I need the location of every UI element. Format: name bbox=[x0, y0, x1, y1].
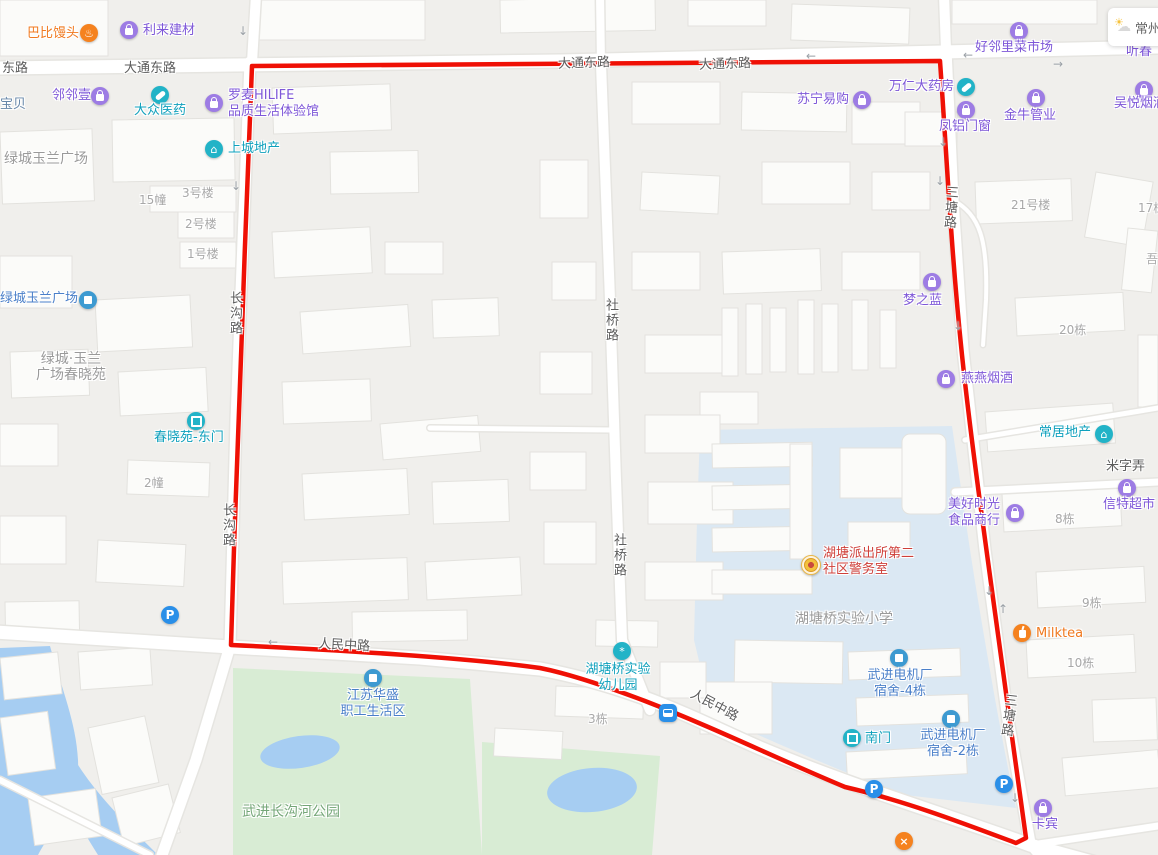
area-label-park: 武进长沟河公园 bbox=[242, 804, 340, 820]
poi-label-mengzhilan[interactable]: 梦之蓝 bbox=[903, 293, 942, 309]
road-label-renmin-1: 人民中路 bbox=[318, 637, 371, 656]
building-label: 17栋 bbox=[1138, 200, 1158, 216]
building-label: 2幢 bbox=[144, 475, 164, 491]
road-label-changgou-2: 长沟路 bbox=[220, 503, 234, 548]
poi-label-lvcheng-west[interactable]: 绿城玉兰广场 bbox=[0, 291, 78, 307]
road-label-datong-2: 大通东路 bbox=[558, 55, 611, 73]
weather-widget[interactable]: ☀ ☁ 常州 bbox=[1108, 8, 1158, 46]
shop-bag-icon[interactable] bbox=[1027, 89, 1045, 107]
building-label: 15幢 bbox=[139, 192, 166, 208]
shop-bag-icon[interactable] bbox=[937, 370, 955, 388]
poi-label-motor-dorm-2[interactable]: 宿舍-2栋 bbox=[927, 744, 979, 759]
shop-bag-icon[interactable] bbox=[1118, 479, 1136, 497]
poi-label-wuyue-yanjiu[interactable]: 吴悦烟酒 bbox=[1114, 96, 1158, 112]
poi-label-police-station[interactable]: 湖塘派出所第二 bbox=[823, 546, 914, 561]
building-icon[interactable] bbox=[942, 710, 960, 728]
building-label: 9栋 bbox=[1082, 595, 1102, 611]
one-way-arrow-icon: ← bbox=[268, 635, 278, 649]
building-icon[interactable] bbox=[79, 291, 97, 309]
road-label-datong-3: 大通东路 bbox=[699, 56, 752, 74]
road-label-mizi: 米字弄 bbox=[1106, 459, 1145, 475]
poi-label-jiangsu-huasheng[interactable]: 职工生活区 bbox=[340, 704, 405, 719]
poi-label-kindergarten[interactable]: 幼儿园 bbox=[598, 678, 637, 693]
poi-label-babi-mantou[interactable]: 巴比馒头 bbox=[27, 26, 79, 42]
gate-icon[interactable] bbox=[187, 412, 205, 430]
one-way-arrow-icon: ↓ bbox=[935, 174, 945, 188]
building-icon[interactable] bbox=[890, 649, 908, 667]
home-icon[interactable]: ⌂ bbox=[1095, 425, 1113, 443]
shop-bag-icon[interactable] bbox=[1034, 799, 1052, 817]
sun-cloud-icon: ☀ ☁ bbox=[1114, 19, 1132, 35]
poi-label-jinniu-guanye[interactable]: 金牛管业 bbox=[1004, 108, 1056, 124]
shop-bag-icon[interactable] bbox=[91, 87, 109, 105]
bus-stop-icon[interactable] bbox=[659, 704, 677, 722]
shop-bag-icon[interactable] bbox=[957, 101, 975, 119]
building-label: 8栋 bbox=[1055, 511, 1075, 527]
shop-bag-icon[interactable] bbox=[1010, 22, 1028, 40]
poi-label-police-station[interactable]: 社区警务室 bbox=[823, 562, 888, 577]
shop-bag-icon[interactable] bbox=[923, 273, 941, 291]
map-canvas[interactable]: 东路 大通东路 大通东路 大通东路 长沟路 长沟路 社桥路 社桥路 三塘路 三塘… bbox=[0, 0, 1158, 855]
poi-label-kabin[interactable]: 卡宾 bbox=[1032, 817, 1058, 833]
building-label: 吾 bbox=[1146, 251, 1158, 267]
steamed-bun-icon[interactable]: ♨ bbox=[80, 24, 98, 42]
area-label-school: 湖塘桥实验小学 bbox=[795, 611, 893, 627]
area-label-chunxiao: 绿城·玉兰 bbox=[41, 351, 101, 367]
poi-label-linlin-yi[interactable]: 邻邻壹 bbox=[52, 88, 91, 104]
poi-label-fenglv-menchuang[interactable]: 凤铝门窗 bbox=[939, 119, 991, 135]
building-label: 3栋 bbox=[588, 711, 608, 727]
shop-bag-icon[interactable] bbox=[853, 91, 871, 109]
poi-label-motor-dorm-2[interactable]: 武进电机厂 bbox=[920, 728, 985, 743]
one-way-arrow-icon: ↓ bbox=[231, 179, 241, 193]
gate-icon[interactable] bbox=[843, 729, 861, 747]
one-way-arrow-icon: ↓ bbox=[1010, 791, 1020, 805]
building-label: 2号楼 bbox=[185, 216, 217, 232]
poi-label-motor-dorm-4[interactable]: 宿舍-4栋 bbox=[874, 684, 926, 699]
road-label-sheqiao-1: 社桥路 bbox=[603, 298, 617, 343]
poi-label-lilai-jiancai[interactable]: 利来建材 bbox=[143, 23, 195, 39]
poi-label-nanmen[interactable]: 南门 bbox=[865, 731, 891, 747]
poi-label-meihao-shiguang[interactable]: 美好时光 bbox=[948, 497, 1000, 512]
poi-label-luomai-hilife[interactable]: 罗麦HILIFE bbox=[228, 88, 294, 103]
one-way-arrow-icon: → bbox=[1053, 57, 1063, 71]
road-label-datong-1: 大通东路 bbox=[124, 61, 176, 77]
restaurant-icon[interactable]: × bbox=[895, 832, 913, 850]
poi-label-dazhong-yiyao[interactable]: 大众医药 bbox=[134, 103, 186, 119]
shop-bag-icon[interactable] bbox=[205, 94, 223, 112]
road-label-changgou-1: 长沟路 bbox=[227, 291, 241, 336]
area-label-lvcheng-north: 绿城玉兰广场 bbox=[4, 151, 88, 167]
poi-label-suning[interactable]: 苏宁易购 bbox=[797, 92, 849, 108]
poi-label-tingchun-partial[interactable]: 听春 bbox=[1126, 44, 1152, 60]
parking-icon[interactable]: P bbox=[161, 606, 179, 624]
poi-label-kindergarten[interactable]: 湖塘桥实验 bbox=[585, 662, 650, 677]
one-way-arrow-icon: ↓ bbox=[984, 584, 994, 598]
poi-label-meihao-shiguang[interactable]: 食品商行 bbox=[948, 513, 1000, 528]
building-label: 20栋 bbox=[1059, 322, 1086, 338]
one-way-arrow-icon: ↓ bbox=[953, 319, 963, 333]
police-badge-icon[interactable] bbox=[801, 555, 821, 575]
shop-bag-icon[interactable] bbox=[1006, 504, 1024, 522]
poi-label-chunxiaoyuan-dongmen[interactable]: 春晓苑-东门 bbox=[154, 430, 224, 446]
road-label-santang-1: 三塘路 bbox=[940, 185, 957, 231]
poi-label-shangcheng-dichan[interactable]: 上城地产 bbox=[228, 141, 280, 157]
building-label: 10栋 bbox=[1067, 655, 1094, 671]
one-way-arrow-icon: ← bbox=[963, 48, 973, 62]
kindergarten-flower-icon[interactable]: * bbox=[613, 642, 631, 660]
road-label-donglu: 东路 bbox=[2, 61, 28, 77]
poi-label-motor-dorm-4[interactable]: 武进电机厂 bbox=[867, 668, 932, 683]
poi-label-jiangsu-huasheng[interactable]: 江苏华盛 bbox=[347, 688, 399, 703]
poi-label-yanyan-yanjiu[interactable]: 燕燕烟酒 bbox=[961, 371, 1013, 387]
poi-label-changju-dichan[interactable]: 常居地产 bbox=[1039, 425, 1091, 441]
area-label-chunxiao: 广场春晓苑 bbox=[36, 367, 106, 383]
one-way-arrow-icon: ↓ bbox=[238, 24, 248, 38]
poi-label-baobei[interactable]: 宝贝 bbox=[0, 97, 26, 113]
one-way-arrow-icon: ← bbox=[806, 49, 816, 63]
building-label: 21号楼 bbox=[1011, 197, 1050, 213]
shop-bag-icon[interactable] bbox=[120, 21, 138, 39]
one-way-arrow-icon: ↑ bbox=[998, 602, 1008, 616]
parking-icon[interactable]: P bbox=[865, 780, 883, 798]
milk-tea-cup-icon[interactable] bbox=[1013, 624, 1031, 642]
poi-label-luomai-hilife[interactable]: 品质生活体验馆 bbox=[228, 104, 319, 119]
poi-label-wanren-dayaofang[interactable]: 万仁大药房 bbox=[889, 79, 954, 95]
building-label: 3号楼 bbox=[182, 185, 214, 201]
home-icon[interactable]: ⌂ bbox=[205, 140, 223, 158]
poi-label-milktea[interactable]: Milktea bbox=[1036, 626, 1083, 642]
pharmacy-pill-icon[interactable] bbox=[957, 78, 975, 96]
building-icon[interactable] bbox=[364, 669, 382, 687]
weather-city-label: 常州 bbox=[1135, 18, 1158, 37]
poi-label-xinte-chaoshi[interactable]: 信特超市 bbox=[1103, 497, 1155, 513]
road-label-sheqiao-2: 社桥路 bbox=[611, 533, 625, 578]
poi-label-haolinli-market[interactable]: 好邻里菜市场 bbox=[975, 40, 1053, 56]
building-label: 1号楼 bbox=[187, 246, 219, 262]
one-way-arrow-icon: ↓ bbox=[938, 135, 948, 149]
pharmacy-pill-icon[interactable] bbox=[151, 86, 169, 104]
